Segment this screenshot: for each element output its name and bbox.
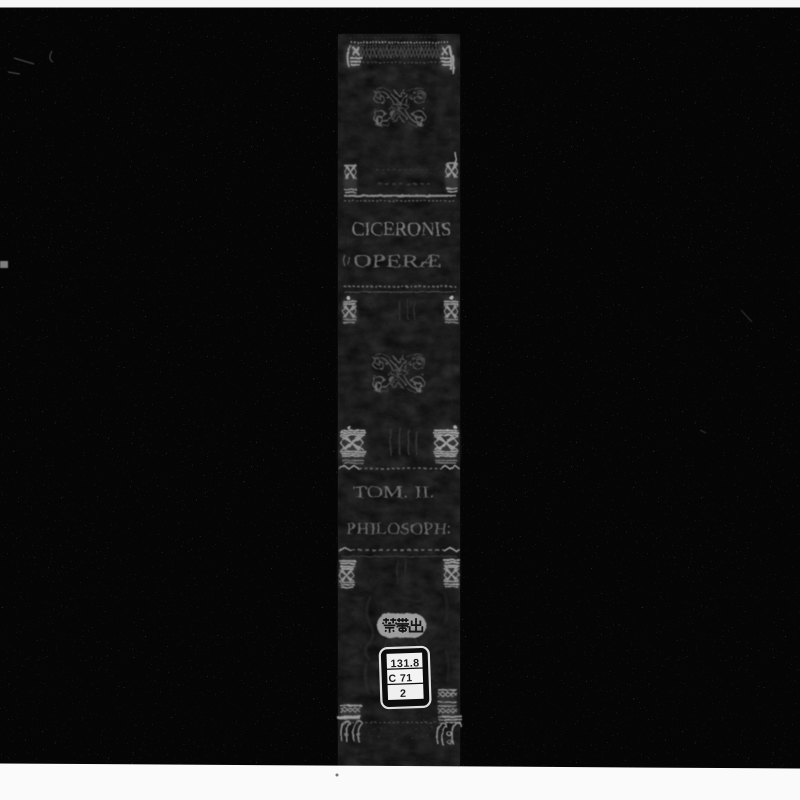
svg-text:2: 2 xyxy=(400,688,406,700)
svg-text:TOM. II.: TOM. II. xyxy=(353,483,435,502)
svg-text:131.8: 131.8 xyxy=(390,657,419,670)
svg-text:OPERÆ: OPERÆ xyxy=(354,251,442,271)
svg-text:CICERONIS: CICERONIS xyxy=(352,220,452,241)
svg-text:PHILOSOPH:: PHILOSOPH: xyxy=(346,519,452,538)
svg-text:C 71: C 71 xyxy=(388,672,413,685)
